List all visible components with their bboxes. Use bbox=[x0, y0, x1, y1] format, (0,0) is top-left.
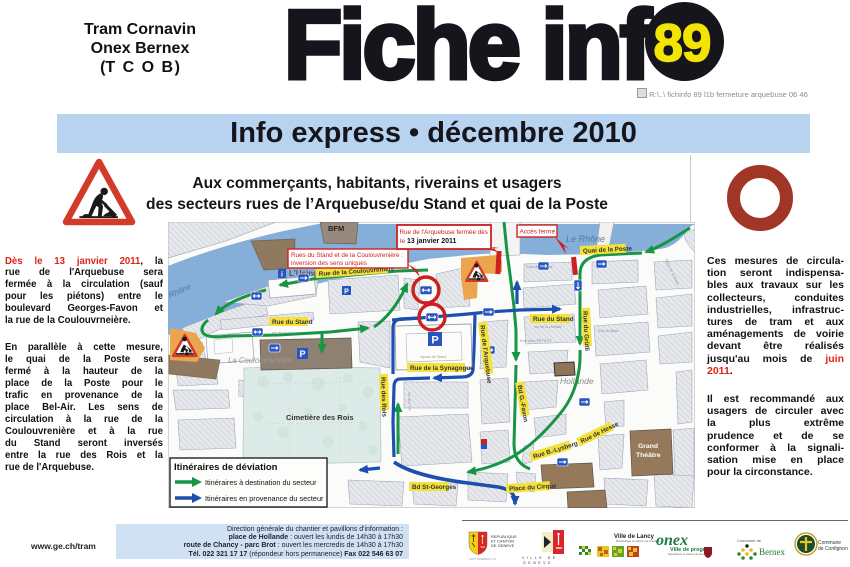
svg-text:P: P bbox=[344, 289, 349, 296]
svg-text:DE GENEVE: DE GENEVE bbox=[491, 543, 515, 548]
svg-text:Cimetière des Rois: Cimetière des Rois bbox=[286, 413, 354, 422]
svg-text:Accès fermé: Accès fermé bbox=[520, 229, 556, 236]
svg-text:Rue du Stand: Rue du Stand bbox=[533, 316, 574, 323]
svg-text:VILLE DE: VILLE DE bbox=[522, 556, 558, 560]
svg-text:Commune de: Commune de bbox=[737, 538, 762, 543]
svg-text:rue de l'ecole: rue de l'ecole bbox=[272, 331, 293, 335]
svg-text:République et canton de Genève: République et canton de Genève bbox=[616, 539, 660, 543]
svg-text:Rue du Nant: Rue du Nant bbox=[598, 329, 618, 333]
svg-text:GENEVE: GENEVE bbox=[523, 561, 553, 565]
svg-text:Le Rhône: Le Rhône bbox=[566, 234, 605, 244]
svg-text:Rue des Rois: Rue des Rois bbox=[379, 377, 387, 418]
svg-text:rue de la chenaie: rue de la chenaie bbox=[534, 325, 562, 329]
svg-text:i: i bbox=[281, 272, 283, 279]
svg-text:P: P bbox=[431, 335, 438, 347]
svg-text:POST TENEBRAS LUX: POST TENEBRAS LUX bbox=[469, 557, 497, 561]
svg-text:square du Stand: square du Stand bbox=[420, 355, 446, 359]
svg-text:inversion des sens uniques: inversion des sens uniques bbox=[291, 260, 367, 267]
svg-text:Grand: Grand bbox=[638, 443, 658, 450]
svg-text:rue des rois: rue des rois bbox=[407, 392, 412, 411]
svg-text:Rues du Stand et de la Coulouv: Rues du Stand et de la Coulouvrenière : bbox=[291, 252, 403, 259]
svg-text:Itinéraires de déviation: Itinéraires de déviation bbox=[174, 462, 278, 473]
svg-text:Rue Jean-PETITOT: Rue Jean-PETITOT bbox=[520, 339, 552, 343]
svg-text:Théâtre: Théâtre bbox=[636, 452, 661, 459]
svg-text:Bernex: Bernex bbox=[759, 547, 785, 557]
svg-text:République et canton de Genève: République et canton de Genève bbox=[668, 552, 709, 556]
svg-text:Itinéraires en provenance du s: Itinéraires en provenance du secteur bbox=[205, 494, 324, 503]
svg-text:Bd St-Georges: Bd St-Georges bbox=[412, 484, 457, 491]
svg-text:P: P bbox=[299, 349, 305, 359]
svg-text:Rue de l'Arquebuse fermée dès: Rue de l'Arquebuse fermée dès bbox=[400, 229, 488, 236]
svg-text:le 13 janvier 2011: le 13 janvier 2011 bbox=[400, 238, 457, 245]
svg-text:Itinéraires à destination du s: Itinéraires à destination du secteur bbox=[205, 478, 317, 487]
svg-text:Quai de la Poste: Quai de la Poste bbox=[526, 265, 553, 269]
svg-text:Rue du Stand: Rue du Stand bbox=[272, 319, 313, 326]
svg-text:de Confignon: de Confignon bbox=[818, 546, 848, 552]
svg-text:BFM: BFM bbox=[328, 224, 344, 233]
svg-text:Rue de la Synagogue: Rue de la Synagogue bbox=[410, 365, 474, 372]
svg-text:La Coulouvrenière: La Coulouvrenière bbox=[228, 356, 292, 365]
